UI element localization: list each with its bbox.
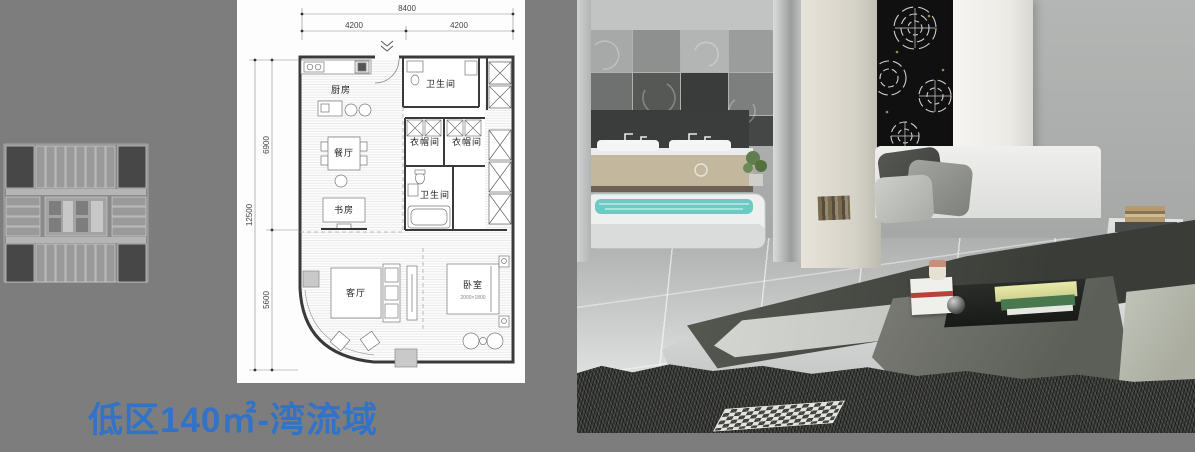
room-label-closet-right: 衣帽间 [452, 136, 482, 147]
glass-sphere [947, 296, 965, 314]
glass-partition [773, 0, 803, 262]
glass-sphere [969, 284, 995, 310]
room-label-bath-top: 卫生间 [426, 78, 456, 89]
dim-top-left: 4200 [345, 21, 363, 30]
room-label-living: 客厅 [346, 287, 366, 298]
cabinet-toe [589, 186, 753, 192]
wall-pillar [577, 0, 591, 262]
chess-pieces [727, 386, 847, 414]
highlight-unit [118, 244, 146, 282]
corridor [6, 189, 146, 195]
room-label-bedroom: 卧室 [463, 279, 483, 290]
dim-left-total: 12500 [245, 203, 254, 226]
kitchen-counter [301, 60, 371, 74]
bathtub [585, 194, 765, 248]
dim-left-upper: 6900 [262, 136, 271, 154]
dim-dots-top [301, 13, 515, 33]
sink [669, 140, 731, 151]
nightstand-books [1125, 206, 1165, 222]
cup [929, 260, 946, 280]
cream-wall [801, 0, 881, 268]
book-stack [818, 195, 851, 220]
corridor [6, 237, 146, 243]
floor-plan: 8400 4200 4200 12500 6900 5600 [237, 0, 525, 383]
building-key-plan [3, 143, 149, 283]
art-panel [877, 0, 953, 158]
pillow [873, 174, 934, 224]
column [395, 349, 417, 367]
pillow [1011, 131, 1106, 205]
wardrobe-column [489, 62, 511, 224]
dim-top-total: 8400 [398, 4, 416, 13]
sink [597, 140, 659, 151]
room-label-closet-left: 衣帽间 [410, 136, 440, 147]
tile-row [585, 0, 775, 30]
bathroom-wall [585, 0, 775, 256]
page-title: 低区140㎡-湾流域 [88, 392, 378, 443]
floor-plan-panel: 8400 4200 4200 12500 6900 5600 [237, 0, 525, 383]
highlight-unit [6, 146, 34, 188]
room-label-dining: 餐厅 [334, 147, 354, 158]
highlight-unit [118, 146, 146, 188]
room-label-kitchen: 厨房 [331, 84, 351, 95]
entry-arrow-icon [381, 41, 393, 51]
dim-left-lower: 5600 [262, 291, 271, 309]
dim-lines-left [249, 60, 298, 370]
room-label-bath-mid: 卫生间 [420, 189, 450, 200]
highlight-unit [6, 244, 34, 282]
dim-dots-left [254, 59, 274, 372]
room-label-study: 书房 [334, 204, 354, 215]
vanity-cabinet [589, 155, 753, 189]
column [303, 271, 319, 287]
dim-top-right: 4200 [450, 21, 468, 30]
bed-size-label: 2000×1800 [460, 295, 485, 301]
bedroom-photo [577, 0, 1195, 433]
